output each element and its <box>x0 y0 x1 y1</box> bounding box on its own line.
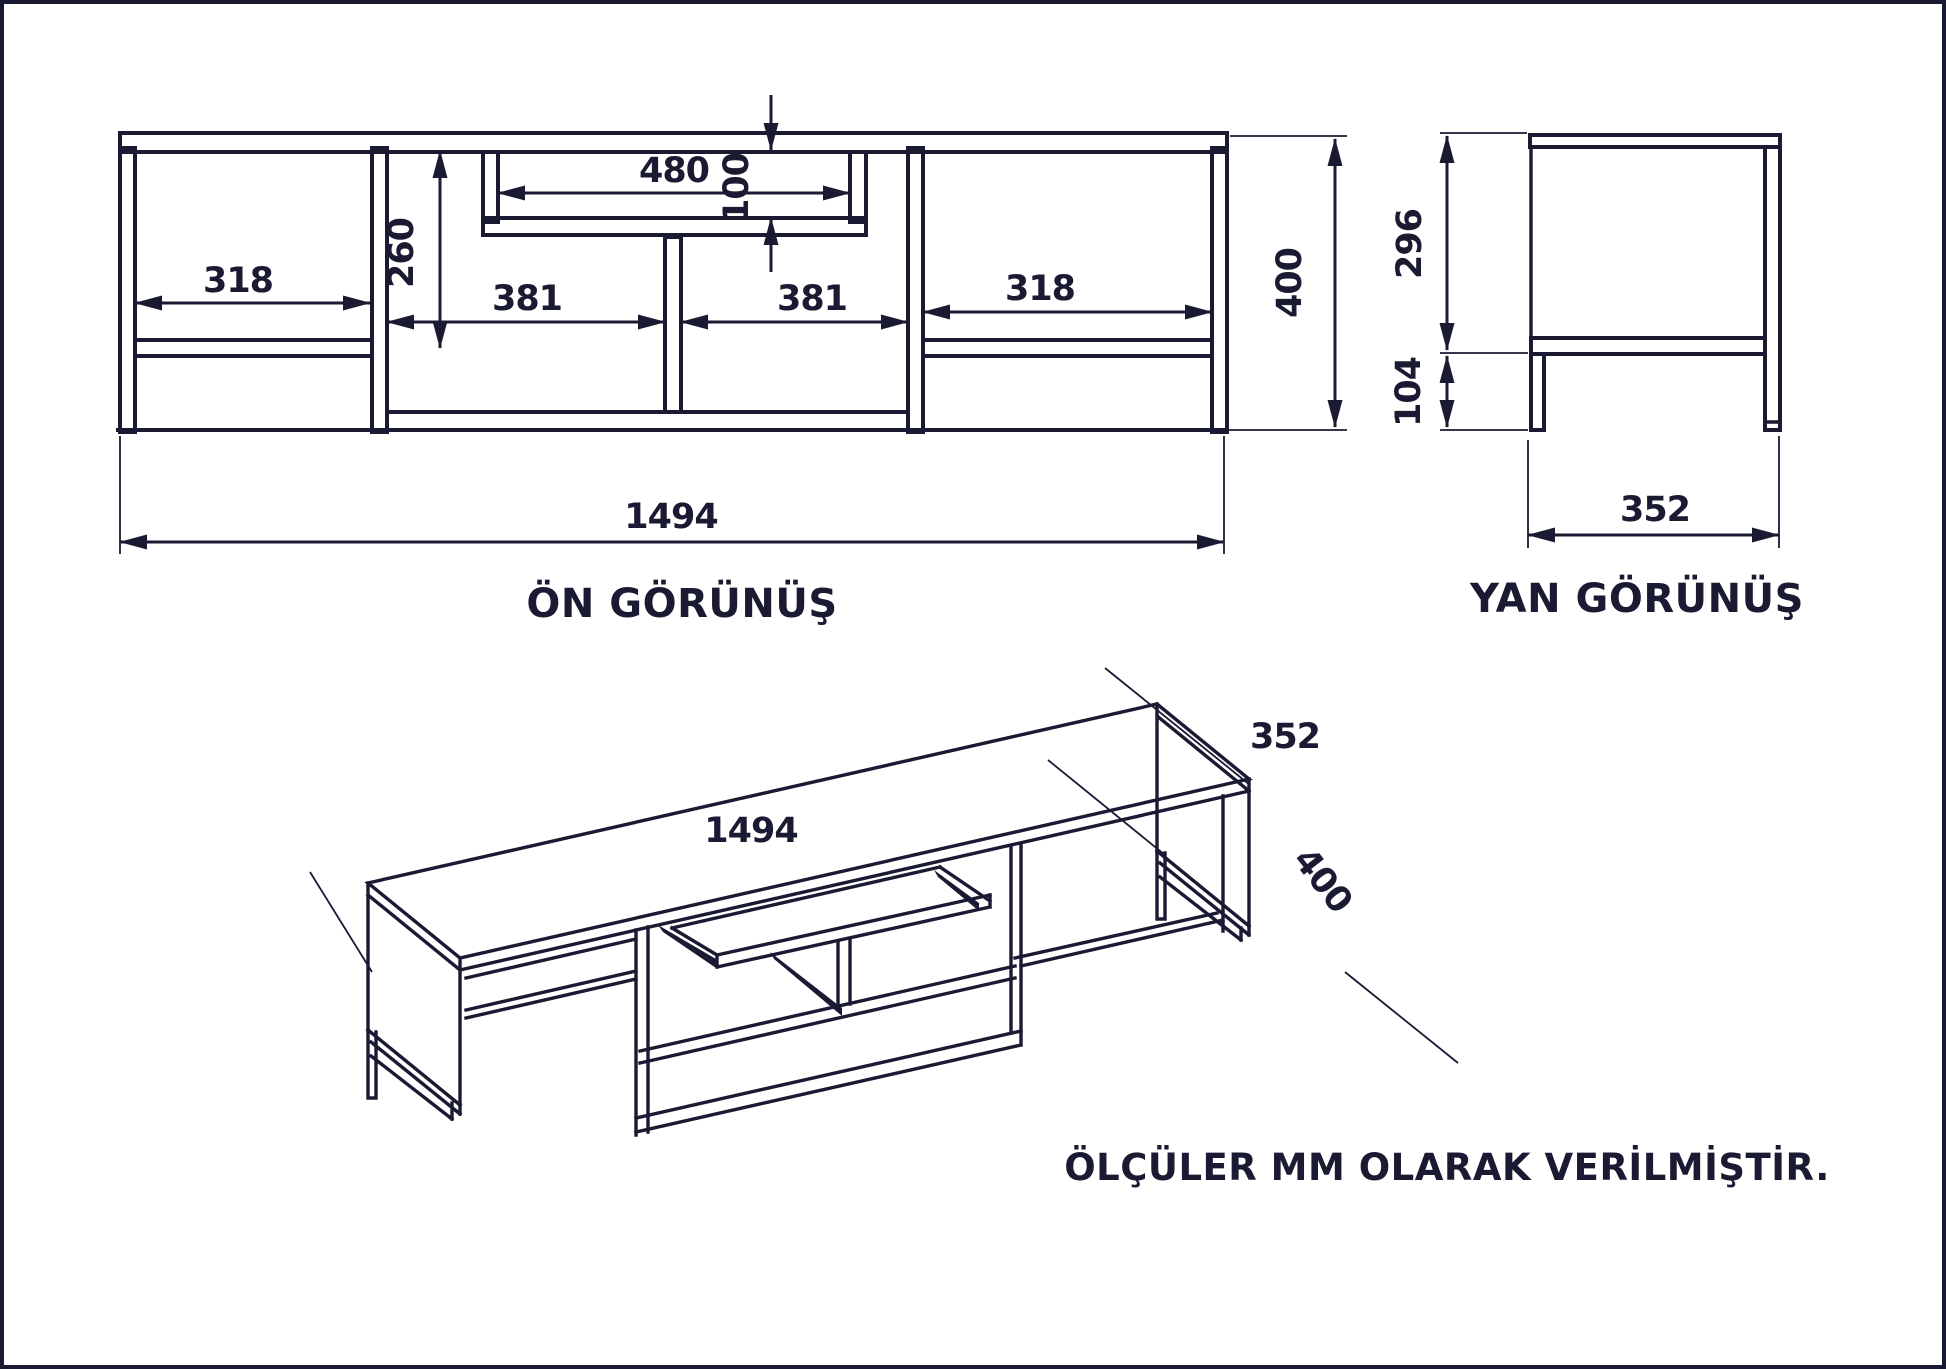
front-divider-3 <box>908 148 923 432</box>
side-view: 296 104 352 YAN GÖRÜNÜŞ <box>1389 133 1804 622</box>
iso-niche-left-wall <box>658 925 716 968</box>
iso-divider-2-gusset <box>770 952 842 1016</box>
front-dim-480-label: 480 <box>639 151 709 191</box>
side-back-panel <box>1765 147 1780 430</box>
iso-leader-400 <box>1345 972 1458 1063</box>
technical-drawing-canvas: 318 381 381 318 260 480 100 400 1494 ÖN … <box>0 0 1946 1369</box>
side-dim-104-label: 104 <box>1389 357 1429 427</box>
front-niche-left-wall <box>483 152 498 222</box>
front-dim-1494-label: 1494 <box>624 497 717 537</box>
side-front-leg <box>1531 354 1544 430</box>
units-note: ÖLÇÜLER MM OLARAK VERİLMİŞTİR. <box>1064 1145 1830 1189</box>
front-left-side-panel <box>120 148 135 432</box>
iso-divider-1 <box>636 927 648 1135</box>
front-niche-shelf <box>483 218 866 235</box>
front-dim-381-right-label: 381 <box>777 279 847 319</box>
iso-suspended-shelf <box>672 867 990 967</box>
front-view-title: ÖN GÖRÜNÜŞ <box>526 579 837 627</box>
front-right-side-panel <box>1212 148 1227 432</box>
iso-leader-352 <box>1048 760 1165 855</box>
iso-back-base-rail <box>640 966 1015 1063</box>
iso-leader-1494-right <box>1105 668 1250 785</box>
iso-leader-1494-left <box>310 872 372 972</box>
iso-dim-352-label: 352 <box>1250 717 1320 757</box>
iso-top-panel-top-face <box>368 704 1249 958</box>
side-view-title: YAN GÖRÜNÜŞ <box>1469 574 1804 622</box>
iso-view: 1494 352 400 <box>310 668 1458 1135</box>
front-dim-381-left-label: 381 <box>492 279 562 319</box>
side-dim-296-label: 296 <box>1390 209 1430 279</box>
front-dim-318-right-label: 318 <box>1005 269 1075 309</box>
iso-dim-400-label: 400 <box>1285 841 1360 921</box>
side-top-panel <box>1530 135 1780 147</box>
side-bottom-shelf <box>1531 338 1765 354</box>
front-niche-right-wall <box>850 152 866 222</box>
front-top-panel <box>120 133 1227 152</box>
front-divider-2 <box>665 237 681 412</box>
iso-divider-2 <box>838 939 850 1006</box>
iso-right-box <box>1015 716 1249 966</box>
side-dim-352-label: 352 <box>1620 490 1690 530</box>
front-left-shelf <box>135 340 372 356</box>
front-dim-260-label: 260 <box>382 218 422 288</box>
front-dim-318-left-label: 318 <box>203 261 273 301</box>
front-dim-400-label: 400 <box>1270 248 1310 318</box>
front-right-shelf <box>923 340 1212 356</box>
iso-divider-3 <box>1011 844 1021 1033</box>
iso-dim-1494-label: 1494 <box>704 811 797 851</box>
iso-left-side-panel <box>368 883 460 1105</box>
iso-front-base-rail <box>636 1031 1021 1132</box>
front-view: 318 381 381 318 260 480 100 400 1494 ÖN … <box>118 95 1347 627</box>
front-divider-1 <box>372 148 387 432</box>
front-dim-100-label: 100 <box>717 153 757 223</box>
